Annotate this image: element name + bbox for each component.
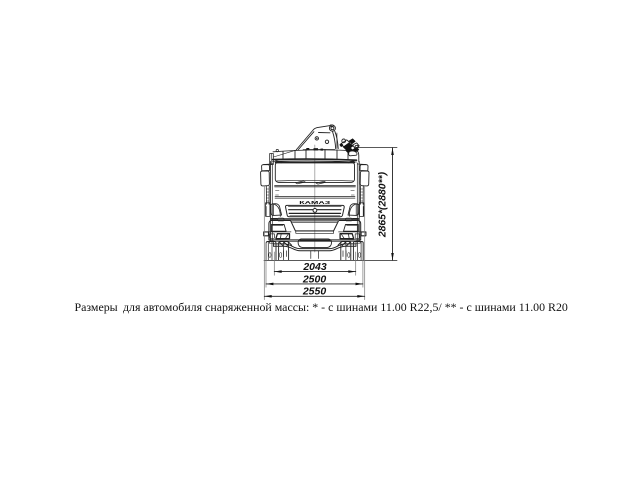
svg-text:2043: 2043 xyxy=(302,261,327,273)
svg-text:2865*(2880**): 2865*(2880**) xyxy=(377,171,388,238)
svg-text:Размеры для автомобиля снаряж: Размеры для автомобиля снаряженной массы… xyxy=(75,300,568,314)
svg-text:2500: 2500 xyxy=(302,273,327,285)
svg-text:2550: 2550 xyxy=(302,286,327,298)
svg-text:КАМАЗ: КАМАЗ xyxy=(299,200,330,205)
